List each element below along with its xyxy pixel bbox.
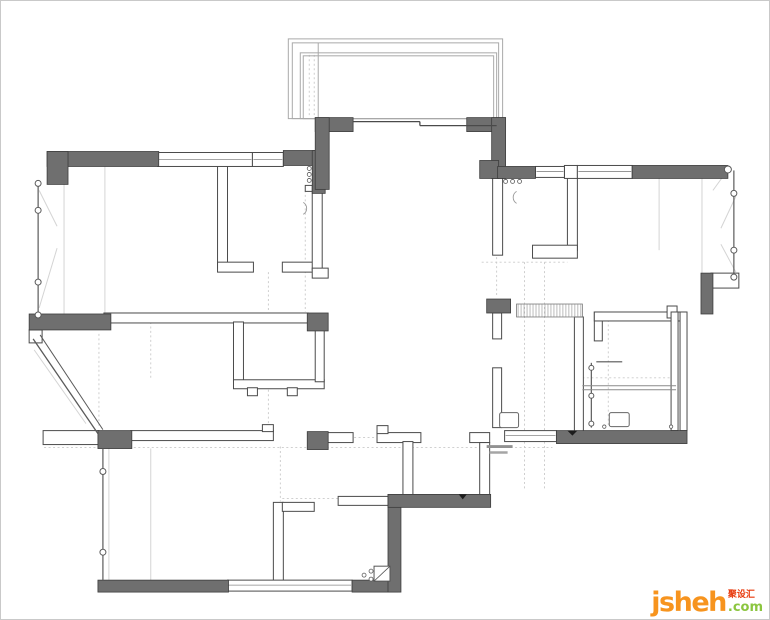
mullions-circle: [669, 425, 672, 428]
structural-walls-rect: [498, 166, 536, 178]
mullions-circle: [362, 573, 366, 577]
thin-walls-rect: [377, 426, 388, 434]
thin-walls-rect: [43, 431, 99, 445]
thin-walls: [29, 160, 739, 582]
mullions-circle: [100, 468, 106, 474]
site-watermark[interactable]: jsheh 聚设汇 .com: [651, 589, 763, 616]
thin-walls-rect: [564, 165, 577, 178]
windows-rect: [577, 165, 632, 178]
mullions-circle: [589, 421, 594, 426]
logo-text: jsheh: [651, 589, 726, 616]
structural-walls-rect: [307, 313, 328, 331]
floor-plan-page: jsheh 聚设汇 .com: [0, 0, 770, 620]
details-rect: [500, 413, 519, 428]
thin-walls-rect: [104, 313, 308, 323]
thin-walls-rect: [327, 433, 353, 443]
mullions-circle: [589, 393, 594, 398]
mullions: [35, 166, 737, 581]
details-rect: [609, 413, 629, 427]
logo-side: 聚设汇 .com: [728, 591, 763, 614]
thin-walls-rect: [218, 262, 254, 272]
balcony-rect: [303, 56, 493, 119]
thin-walls-rect: [131, 431, 274, 441]
thin-walls-rect: [493, 313, 502, 339]
light-lines-line: [39, 248, 57, 308]
thin-walls-rect: [403, 442, 413, 496]
logo-com-text: .com: [728, 601, 763, 614]
structural-walls-rect: [315, 118, 329, 190]
mullions-circle: [100, 549, 106, 555]
mullions-circle: [35, 207, 41, 213]
thin-walls-rect: [338, 496, 389, 505]
structural-walls-rect: [556, 431, 687, 444]
mullions-circle: [369, 569, 373, 573]
windows-rect: [505, 431, 557, 442]
mullions-circle: [35, 180, 41, 186]
thin-walls-rect: [287, 388, 297, 396]
light-lines: [34, 166, 736, 580]
structural-walls-rect: [480, 160, 499, 178]
mullions-circle: [35, 312, 41, 318]
openings-doors-line: [40, 335, 103, 430]
openings-doors-path: [513, 191, 516, 203]
mullions-circle: [731, 247, 737, 253]
thin-walls-rect: [312, 192, 322, 270]
thin-walls-rect: [247, 388, 257, 396]
thin-walls-rect: [218, 160, 228, 268]
mullions-circle: [731, 274, 737, 280]
thin-walls-rect: [567, 177, 577, 250]
structural-walls-rect: [487, 299, 511, 313]
structural-walls-rect: [98, 431, 132, 449]
mullions-circle: [369, 577, 373, 581]
windows-rect: [536, 166, 565, 177]
structural-walls-rect: [632, 165, 728, 178]
structural-walls-rect: [701, 273, 713, 314]
mullions-circle: [35, 279, 41, 285]
mullions-circle: [307, 178, 311, 182]
thin-walls-rect: [282, 262, 313, 272]
mullions-circle: [504, 179, 508, 183]
structural-walls-rect: [47, 152, 68, 185]
openings-doors: [33, 122, 734, 581]
structural-walls-rect: [98, 580, 229, 592]
thin-walls-rect: [273, 502, 283, 582]
thin-walls-rect: [480, 443, 490, 496]
thin-walls-rect: [671, 312, 678, 431]
thin-walls-rect: [29, 330, 42, 343]
mullions-circle: [731, 190, 737, 196]
light-lines-line: [34, 350, 86, 424]
thin-walls-rect: [493, 177, 503, 255]
openings-doors-line: [33, 339, 98, 434]
thin-walls-rect: [262, 425, 273, 432]
mullions-circle: [518, 179, 522, 183]
mullions-circle: [307, 166, 311, 170]
thin-walls-rect: [312, 268, 328, 278]
balcony-rect: [292, 43, 498, 119]
balcony-rect: [300, 53, 496, 119]
thin-walls-rect: [470, 433, 490, 443]
mullions-circle: [589, 365, 594, 370]
windows-rect: [228, 580, 353, 591]
structural-walls-rect: [388, 494, 491, 507]
balcony-rect: [288, 39, 502, 119]
mullions-circle: [511, 179, 515, 183]
mullions-circle: [603, 425, 606, 428]
mullions-circle: [307, 172, 311, 176]
thin-walls-rect: [680, 312, 687, 431]
light-lines-line: [39, 190, 57, 226]
thin-walls-rect: [533, 245, 578, 258]
thin-walls-rect: [305, 185, 312, 191]
thin-walls-rect: [282, 502, 314, 511]
structural-walls: [29, 118, 728, 592]
thin-walls-rect: [574, 317, 583, 432]
balcony: [288, 39, 502, 119]
details-hatch: [517, 304, 583, 317]
thin-walls-rect: [233, 322, 243, 382]
thin-walls-rect: [315, 330, 324, 382]
floor-plan-svg: [1, 1, 769, 619]
structural-walls-rect: [29, 314, 111, 330]
mullions-circle: [724, 166, 731, 173]
structural-walls-rect: [307, 432, 328, 450]
